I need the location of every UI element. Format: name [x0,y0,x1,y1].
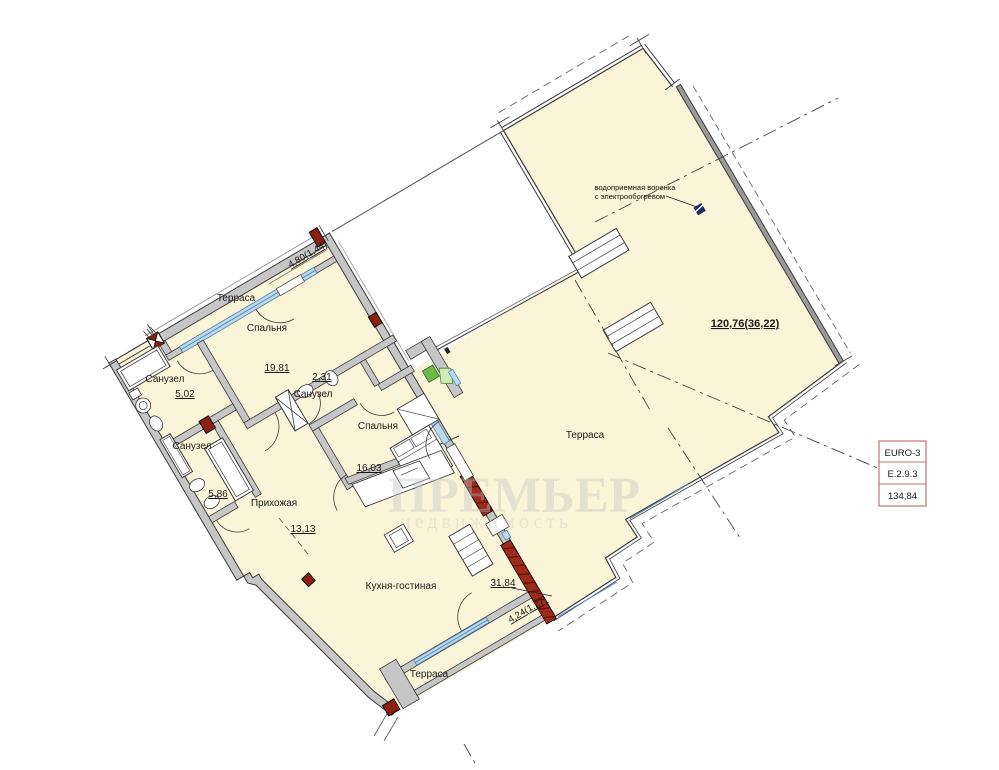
svg-text:5,86: 5,86 [208,489,228,500]
svg-text:с электрообогревом: с электрообогревом [595,192,665,201]
svg-text:Спальня: Спальня [247,323,287,334]
svg-text:120,76(36,22): 120,76(36,22) [711,318,780,330]
svg-text:Е.2.9.3: Е.2.9.3 [887,469,917,480]
svg-text:Санузел: Санузел [146,374,185,385]
svg-text:5,02: 5,02 [175,389,195,400]
svg-text:134,84: 134,84 [888,491,917,502]
svg-text:Прихожая: Прихожая [251,498,297,509]
svg-text:Санузел: Санузел [294,389,333,400]
svg-text:Санузел: Санузел [173,441,212,452]
svg-text:31,84: 31,84 [490,578,515,589]
svg-text:водоприемная воронка: водоприемная воронка [595,183,677,192]
svg-text:Спальня: Спальня [358,421,398,432]
svg-text:19,81: 19,81 [264,363,289,374]
svg-text:13,13: 13,13 [290,524,315,535]
svg-text:Терраса: Терраса [566,430,605,441]
svg-text:16,03: 16,03 [356,463,381,474]
svg-text:недвижимость: недвижимость [400,511,572,533]
svg-text:Терраса: Терраса [217,293,256,304]
svg-text:EURO-3: EURO-3 [885,448,921,459]
svg-text:Кухня-гостиная: Кухня-гостиная [366,581,437,592]
svg-text:2,31: 2,31 [312,372,332,383]
svg-text:Терраса: Терраса [410,669,449,680]
